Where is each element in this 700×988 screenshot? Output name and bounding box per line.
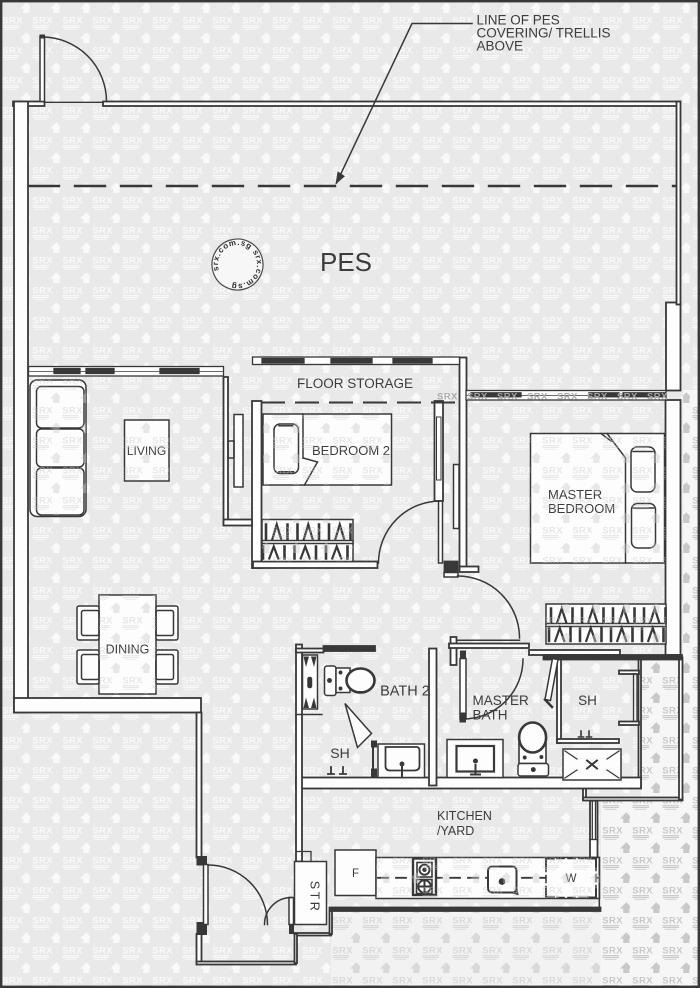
svg-text:FLOOR STORAGE: FLOOR STORAGE — [297, 376, 413, 391]
svg-text:SRX: SRX — [467, 392, 488, 403]
svg-text:SRX: SRX — [437, 392, 458, 403]
svg-text:SH: SH — [330, 745, 349, 761]
svg-text:SRX: SRX — [647, 392, 668, 403]
svg-text:ABOVE: ABOVE — [477, 39, 524, 54]
svg-text:SRX: SRX — [587, 392, 608, 403]
svg-text:F: F — [352, 868, 359, 880]
svg-text:STR: STR — [308, 881, 322, 914]
svg-text:PES: PES — [320, 247, 372, 277]
svg-text:BATH 2: BATH 2 — [380, 684, 430, 700]
svg-text:SRX: SRX — [617, 392, 638, 403]
svg-text:SRX: SRX — [497, 392, 518, 403]
svg-text:SH: SH — [578, 693, 597, 708]
svg-text:KITCHEN: KITCHEN — [437, 809, 492, 823]
svg-text:SRX: SRX — [527, 392, 548, 403]
svg-text:/YARD: /YARD — [437, 824, 474, 838]
svg-text:BATH: BATH — [473, 708, 508, 723]
svg-text:SRX: SRX — [557, 392, 578, 403]
svg-text:MASTER: MASTER — [473, 693, 530, 708]
